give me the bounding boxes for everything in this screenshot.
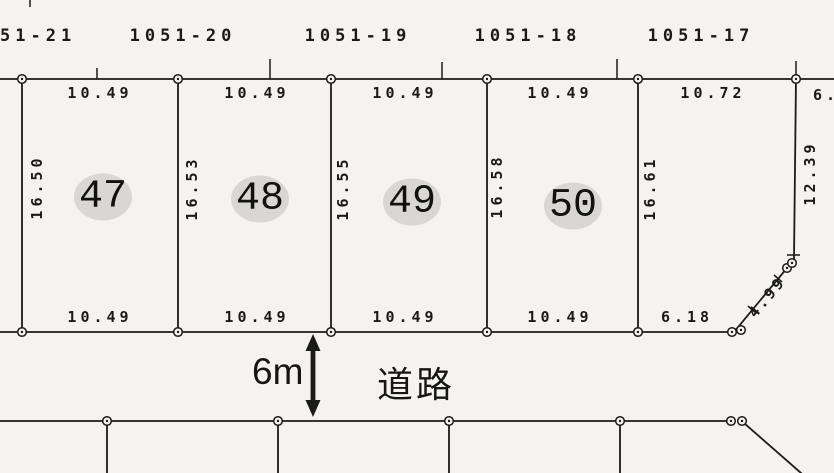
bottom-dimension: 10.49: [527, 308, 592, 326]
top-dimension: 10.72: [680, 84, 745, 102]
top-dimension: 10.49: [67, 84, 132, 102]
top-dimension: 10.49: [372, 84, 437, 102]
lot-number-badge: 48: [231, 176, 289, 223]
bottom-dimension: 10.49: [67, 308, 132, 326]
top-dimension: 10.49: [527, 84, 592, 102]
parcel-boundary-lines: [0, 79, 834, 473]
bottom-dimension: 10.49: [372, 308, 437, 326]
survey-tick-marks: [30, 0, 800, 313]
side-dimension: 16.50: [28, 154, 46, 219]
cadastral-map: 51-21 1051-20 1051-19 1051-18 1051-17 10…: [0, 0, 834, 473]
upper-parcel-label: 1051-20: [130, 26, 237, 46]
upper-parcel-label: 1051-18: [475, 26, 582, 46]
upper-parcel-label: 1051-19: [305, 26, 412, 46]
bottom-dimension: 10.49: [224, 308, 289, 326]
side-dimension: 16.53: [183, 155, 201, 220]
road-width-arrow-icon: [306, 334, 321, 417]
side-dimension: 12.39: [801, 140, 819, 205]
top-dimension: 10.49: [224, 84, 289, 102]
road-width-label: 6m: [252, 351, 303, 393]
lot-number-badge: 50: [544, 183, 602, 230]
upper-parcel-label: 1051-17: [648, 26, 755, 46]
side-dimension: 16.55: [334, 155, 352, 220]
top-dimension-partial: 6.: [813, 86, 834, 104]
lot-number-badge: 49: [383, 179, 441, 226]
upper-parcel-label: 51-21: [0, 26, 76, 46]
road-name-label: 道路: [377, 356, 455, 408]
bottom-dimension: 6.18: [661, 308, 713, 326]
side-dimension: 16.58: [488, 153, 506, 218]
side-dimension: 16.61: [641, 155, 659, 220]
lot-number-badge: 47: [74, 174, 132, 221]
